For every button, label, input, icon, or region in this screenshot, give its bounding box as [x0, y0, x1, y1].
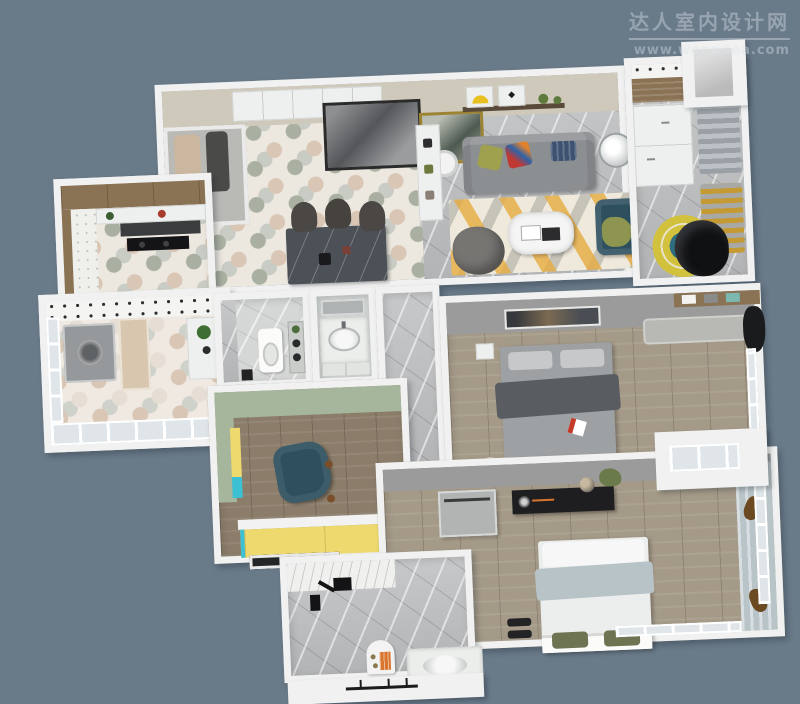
kids-armchair	[271, 439, 335, 506]
hanging-clothes-gray	[697, 101, 742, 175]
washing-machine	[62, 323, 116, 383]
display-shelf-column	[415, 124, 443, 221]
print-frame-yellow-fan	[466, 86, 494, 108]
print-frame-diamond: ◆	[498, 85, 526, 107]
vanity-counter	[319, 316, 369, 364]
bathroom-marble-wall	[221, 300, 239, 383]
vanity-sink	[328, 327, 361, 352]
room-balcony-laundry	[38, 287, 236, 453]
closet-cabinet	[633, 103, 694, 187]
floorplan-render: 达人室内设计网 www.wonadea.com ◆	[0, 0, 800, 704]
toilet-seat	[262, 342, 279, 367]
washer-door	[77, 339, 103, 365]
dining-chair-2	[324, 198, 351, 229]
console-orange-stripe	[532, 499, 554, 502]
bathroom-shelf-rack	[287, 321, 305, 374]
balcony-window-left	[46, 317, 63, 423]
cushion-navy	[550, 140, 577, 161]
vanity-drawers	[321, 362, 369, 376]
dining-chair-3	[358, 201, 385, 232]
dresser-top-line	[444, 497, 490, 502]
burners	[139, 242, 145, 248]
console-speaker	[518, 496, 530, 508]
bay-window-glass	[669, 443, 740, 472]
balcony-plant	[197, 325, 212, 340]
shelf-plants-small	[292, 325, 300, 333]
dresser	[438, 489, 498, 537]
room-entry-dining-living: ◆	[154, 65, 632, 296]
bed-pillows	[508, 351, 553, 371]
armchair-leg	[324, 460, 333, 469]
balcony-cabinet	[118, 318, 151, 391]
bed-blanket	[495, 374, 621, 419]
bed2-throw	[535, 561, 655, 601]
apartment-plan: ◆	[13, 15, 788, 698]
yellow-fan-art	[472, 95, 488, 104]
dining-chair-1	[290, 201, 317, 232]
coffee-table-books	[522, 226, 541, 240]
lamp-base	[310, 595, 321, 611]
orange-stool-front	[379, 652, 391, 670]
mirror-cabinet	[321, 298, 366, 316]
room-study-bath	[279, 549, 476, 683]
watermark-site-name: 达人室内设计网	[629, 6, 790, 40]
desk-lamp	[333, 577, 352, 591]
bathroom-bin	[241, 369, 252, 380]
large-leaning-artwork	[322, 99, 423, 171]
cushion-olive	[477, 144, 504, 171]
olive-throw	[601, 216, 632, 247]
kids-wall-back	[214, 385, 401, 419]
dining-table	[286, 224, 388, 284]
stool-dots	[370, 654, 375, 659]
toilet	[258, 328, 284, 373]
nightstand	[476, 343, 495, 360]
room-bathroom	[213, 290, 313, 390]
shelf-books	[682, 295, 696, 305]
range-hood	[120, 220, 200, 236]
console-plant	[599, 468, 622, 487]
balcony-windows-bottom	[51, 416, 230, 445]
coffee-table	[507, 211, 575, 256]
orange-stool	[366, 640, 395, 675]
bed2-pillow-left	[552, 631, 589, 648]
room-vanity-bathroom	[309, 287, 379, 386]
faucet	[342, 321, 346, 328]
cooktop	[127, 236, 189, 252]
slippers-left	[508, 630, 532, 639]
towel-bar-prongs	[360, 680, 362, 688]
towel-bar	[346, 685, 418, 691]
panoramic-artwork	[504, 306, 601, 330]
red-book	[567, 418, 586, 437]
watermark-url: www.wonadea.com	[629, 43, 790, 58]
bay-window-block	[654, 428, 768, 491]
kids-side-wardrobe	[230, 428, 243, 498]
black-chair	[742, 306, 766, 353]
shelf-decor-dots	[423, 138, 432, 147]
table-decor	[319, 253, 331, 265]
master-window-right	[746, 348, 760, 432]
cabinet-handles	[661, 122, 669, 124]
watermark: 达人室内设计网 www.wonadea.com	[629, 6, 790, 58]
cushion-multicolor	[504, 141, 533, 170]
tv-console	[512, 486, 615, 514]
